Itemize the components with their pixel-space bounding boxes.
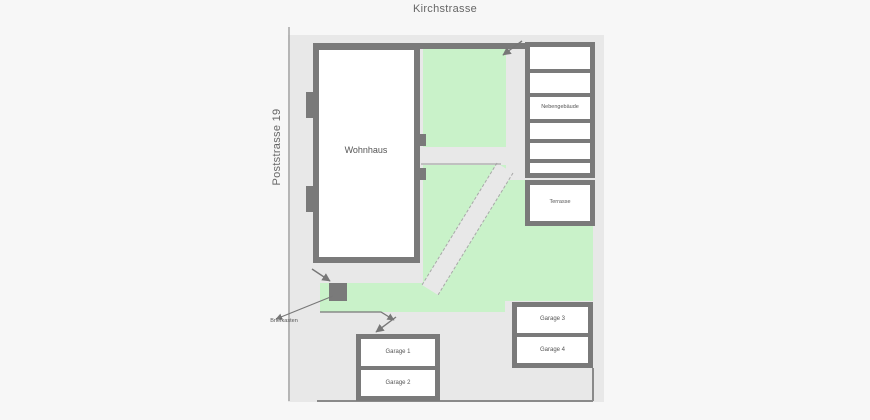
site-plan: Kirchstrasse Poststrasse 19 Wohnhaus Neb… — [0, 0, 870, 420]
garage12-building — [356, 334, 440, 401]
wohnhaus-left-stub-2 — [306, 186, 313, 212]
wohnhaus-right-stub-2 — [420, 168, 426, 180]
garage34-building — [512, 302, 593, 368]
terrasse-label: Terrasse — [525, 199, 595, 205]
garage3-label: Garage 3 — [512, 316, 593, 323]
wohnhaus-label: Wohnhaus — [316, 146, 416, 156]
garage1-label: Garage 1 — [356, 349, 440, 356]
garage2-label: Garage 2 — [356, 380, 440, 387]
briefkasten-marker — [329, 283, 347, 301]
street-label-poststrasse: Poststrasse 19 — [271, 92, 283, 202]
wohnhaus-right-stub-1 — [420, 134, 426, 146]
site-plan-drawing — [0, 0, 870, 420]
briefkasten-label: Briefkasten — [254, 318, 314, 324]
lawn-upper — [423, 49, 506, 147]
garage4-label: Garage 4 — [512, 347, 593, 354]
wohnhaus-left-stub-1 — [306, 92, 313, 118]
nebengebaeude-label: Nebengebäude — [525, 104, 595, 110]
street-label-kirchstrasse: Kirchstrasse — [380, 3, 510, 15]
